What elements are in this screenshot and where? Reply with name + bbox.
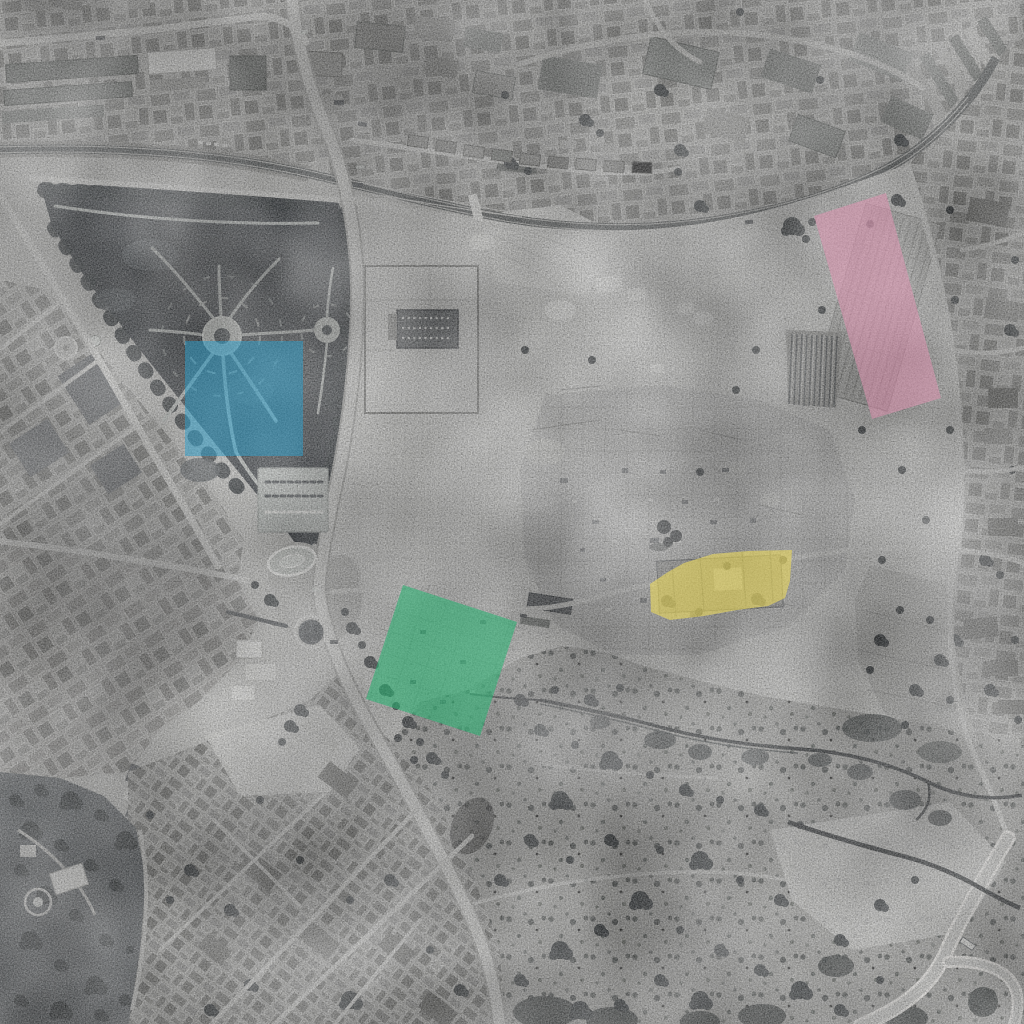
aerial-photo bbox=[0, 0, 1024, 1024]
highlight-zone-blue[interactable] bbox=[185, 341, 303, 456]
screenshot bbox=[0, 0, 1024, 1024]
photo-grain-light bbox=[0, 0, 1024, 1024]
